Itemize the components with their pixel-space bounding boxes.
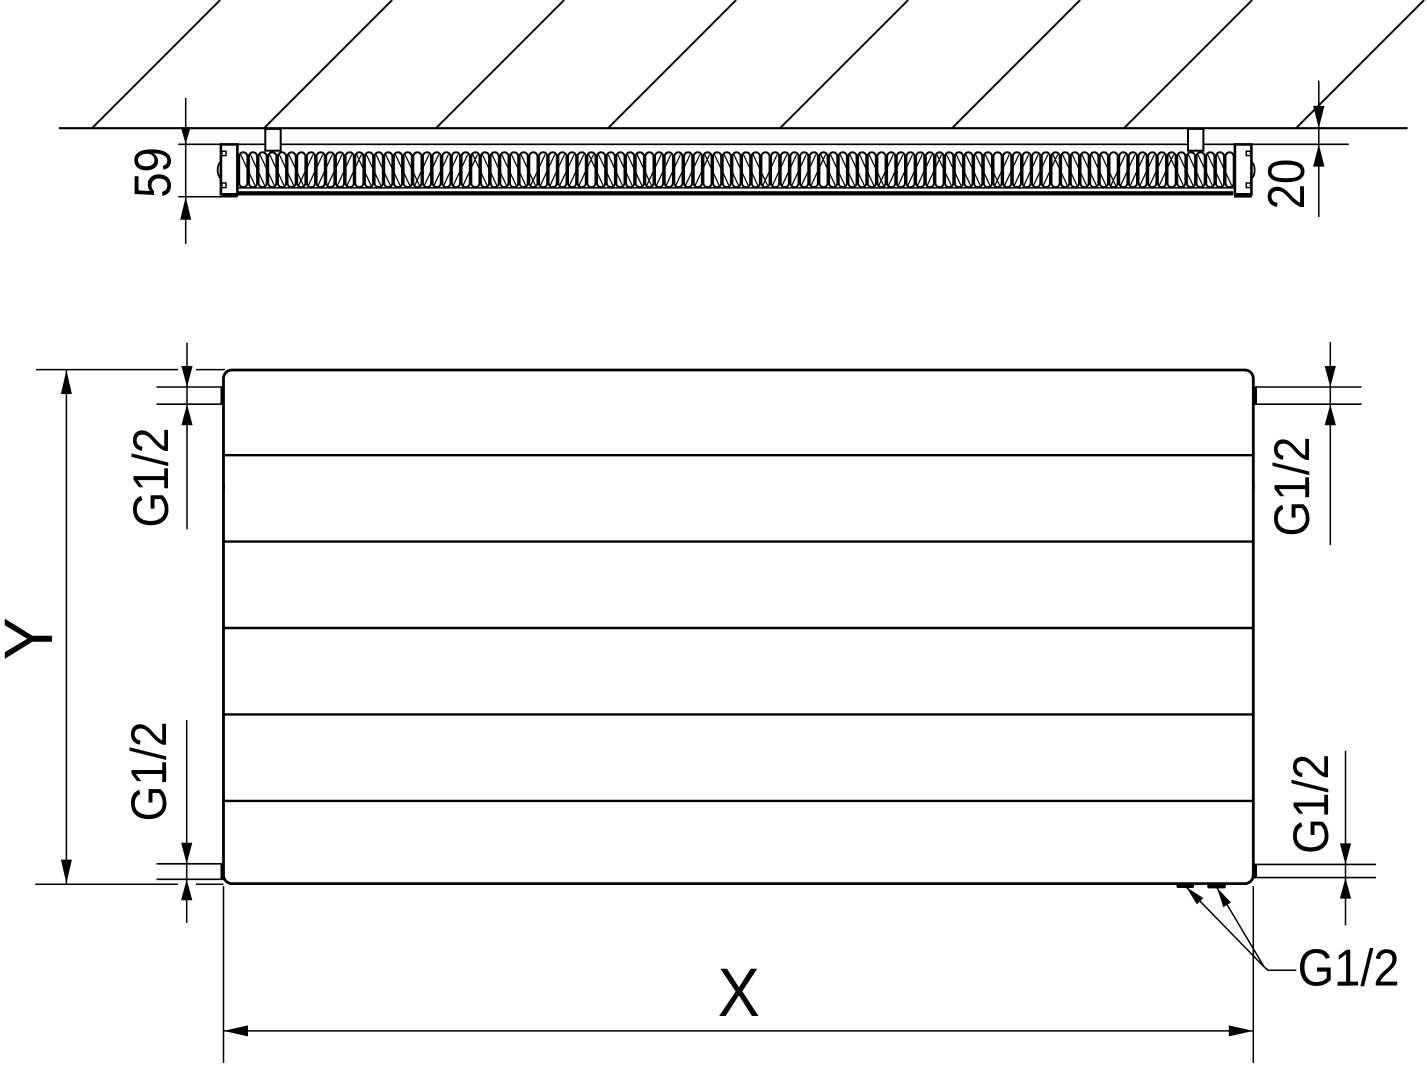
svg-text:20: 20: [1257, 159, 1315, 210]
svg-text:G1/2: G1/2: [1298, 939, 1400, 997]
svg-text:X: X: [718, 954, 760, 1031]
svg-text:G1/2: G1/2: [121, 722, 177, 822]
svg-text:Y: Y: [0, 617, 67, 660]
svg-text:59: 59: [123, 147, 181, 198]
svg-text:G1/2: G1/2: [1264, 437, 1320, 537]
svg-text:G1/2: G1/2: [123, 428, 179, 528]
svg-text:G1/2: G1/2: [1283, 754, 1339, 854]
